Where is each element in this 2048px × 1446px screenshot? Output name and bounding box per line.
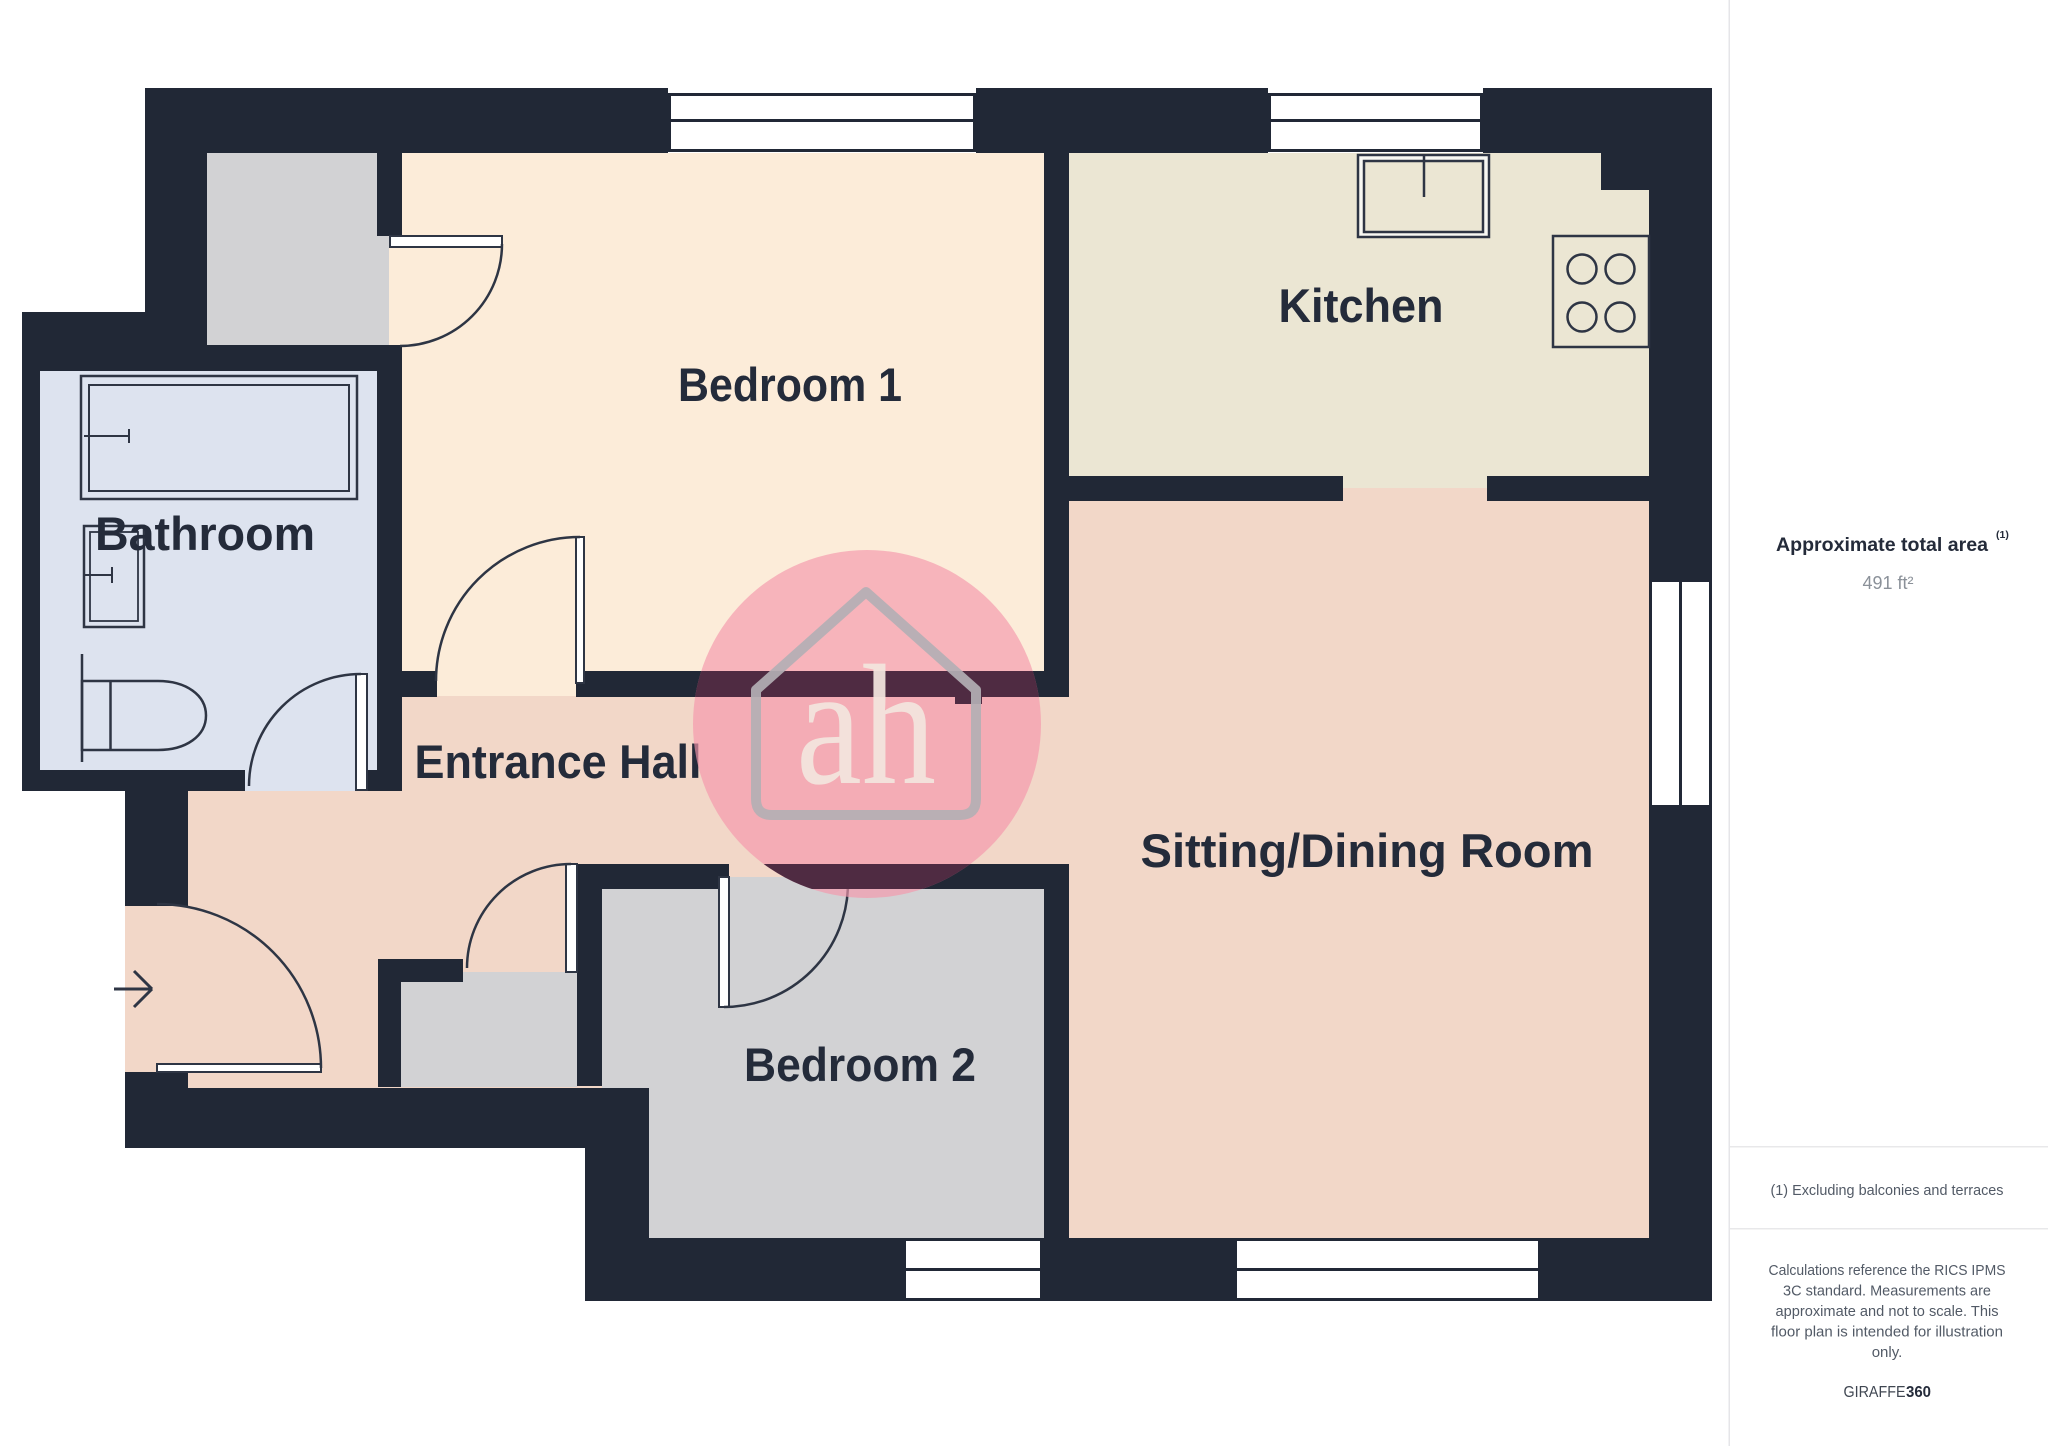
svg-text:Bedroom 2: Bedroom 2 <box>744 1038 976 1091</box>
svg-text:ah: ah <box>796 631 936 821</box>
svg-text:GIRAFFE: GIRAFFE <box>1844 1384 1906 1401</box>
svg-text:360: 360 <box>1906 1384 1931 1401</box>
svg-text:3C standard. Measurements are: 3C standard. Measurements are <box>1783 1283 1991 1300</box>
svg-text:approximate and not to scale.: approximate and not to scale. This <box>1776 1303 1999 1320</box>
svg-text:(1) Excluding balconies and te: (1) Excluding balconies and terraces <box>1771 1182 2004 1199</box>
svg-text:only.: only. <box>1872 1344 1903 1361</box>
svg-text:Approximate total area: Approximate total area <box>1776 534 1988 556</box>
svg-text:Bathroom: Bathroom <box>95 507 315 560</box>
svg-text:Kitchen: Kitchen <box>1279 279 1444 332</box>
svg-text:491 ft²: 491 ft² <box>1862 573 1913 593</box>
svg-text:floor plan is intended for ill: floor plan is intended for illustration <box>1771 1324 2003 1341</box>
svg-text:Calculations reference the RIC: Calculations reference the RICS IPMS <box>1769 1262 2006 1279</box>
svg-text:Bedroom 1: Bedroom 1 <box>678 358 902 411</box>
svg-text:(1): (1) <box>1996 529 2009 541</box>
svg-text:Entrance Hall: Entrance Hall <box>415 735 702 788</box>
svg-text:Sitting/Dining Room: Sitting/Dining Room <box>1141 824 1594 877</box>
